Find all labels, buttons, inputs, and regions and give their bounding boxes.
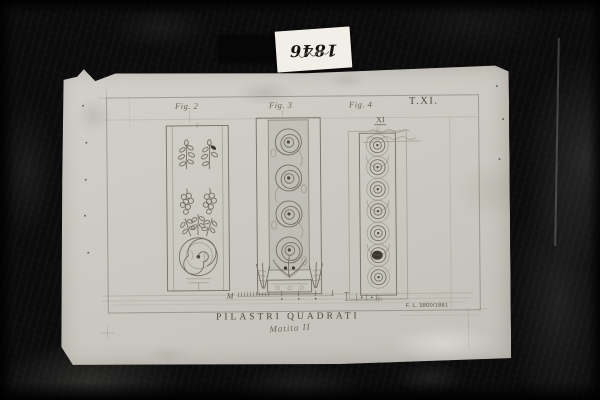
inventory-stamp: F. L. 5800/1881 — [406, 303, 448, 309]
pilaster-fig4 — [345, 127, 413, 304]
faint-line — [399, 314, 479, 316]
corner-cross-v — [107, 327, 108, 340]
pinhole — [84, 215, 86, 217]
rosette — [367, 222, 389, 244]
rosette — [367, 266, 389, 288]
roman-numeral-xi: XI — [374, 115, 387, 125]
small-scale-ticks — [343, 290, 403, 305]
sheet-title: PILASTRI QUADRATI — [209, 311, 367, 322]
corner-extension — [478, 308, 488, 309]
pinhole — [502, 118, 504, 120]
handwriting-scribble — [296, 48, 330, 58]
berry-cluster — [180, 189, 193, 215]
pinhole — [85, 142, 87, 144]
pilaster-fig3 — [249, 112, 329, 301]
pinhole — [499, 158, 501, 160]
photograph-of-drawing: 1846 Fig. 2 Fig. 3 Fig. 4 T.XI. XI — [0, 0, 600, 400]
leaf-sprig — [177, 140, 195, 169]
rosette — [366, 134, 388, 156]
scale-bar: M — [227, 287, 339, 304]
pinhole — [496, 85, 498, 87]
corner-extension — [106, 90, 107, 99]
black-tape-strip — [219, 36, 281, 63]
drawing-sheet: Fig. 2 Fig. 3 Fig. 4 T.XI. XI — [57, 64, 512, 368]
leaf-sprig — [200, 140, 218, 169]
crown-leaves — [178, 217, 198, 239]
berry-cluster — [203, 189, 216, 215]
pinhole — [87, 252, 89, 254]
figure-2-label: Fig. 2 — [175, 101, 198, 111]
archive-label-content: 1846 — [289, 41, 338, 58]
pinhole — [85, 179, 87, 181]
plate-number: T.XI. — [409, 95, 465, 106]
figure-3-label: Fig. 3 — [269, 100, 292, 110]
rosette — [367, 178, 389, 200]
sheet-subtitle: Matita II — [240, 320, 340, 336]
crown-leaves — [191, 215, 206, 235]
spiral-rosette — [179, 238, 217, 276]
pilaster-fig2 — [157, 122, 238, 295]
leader-tick — [189, 111, 190, 123]
archive-label-slip: 1846 — [275, 26, 353, 72]
scale-letter: M — [226, 291, 235, 300]
figure-4-label: Fig. 4 — [349, 99, 372, 109]
pinhole — [82, 105, 84, 107]
